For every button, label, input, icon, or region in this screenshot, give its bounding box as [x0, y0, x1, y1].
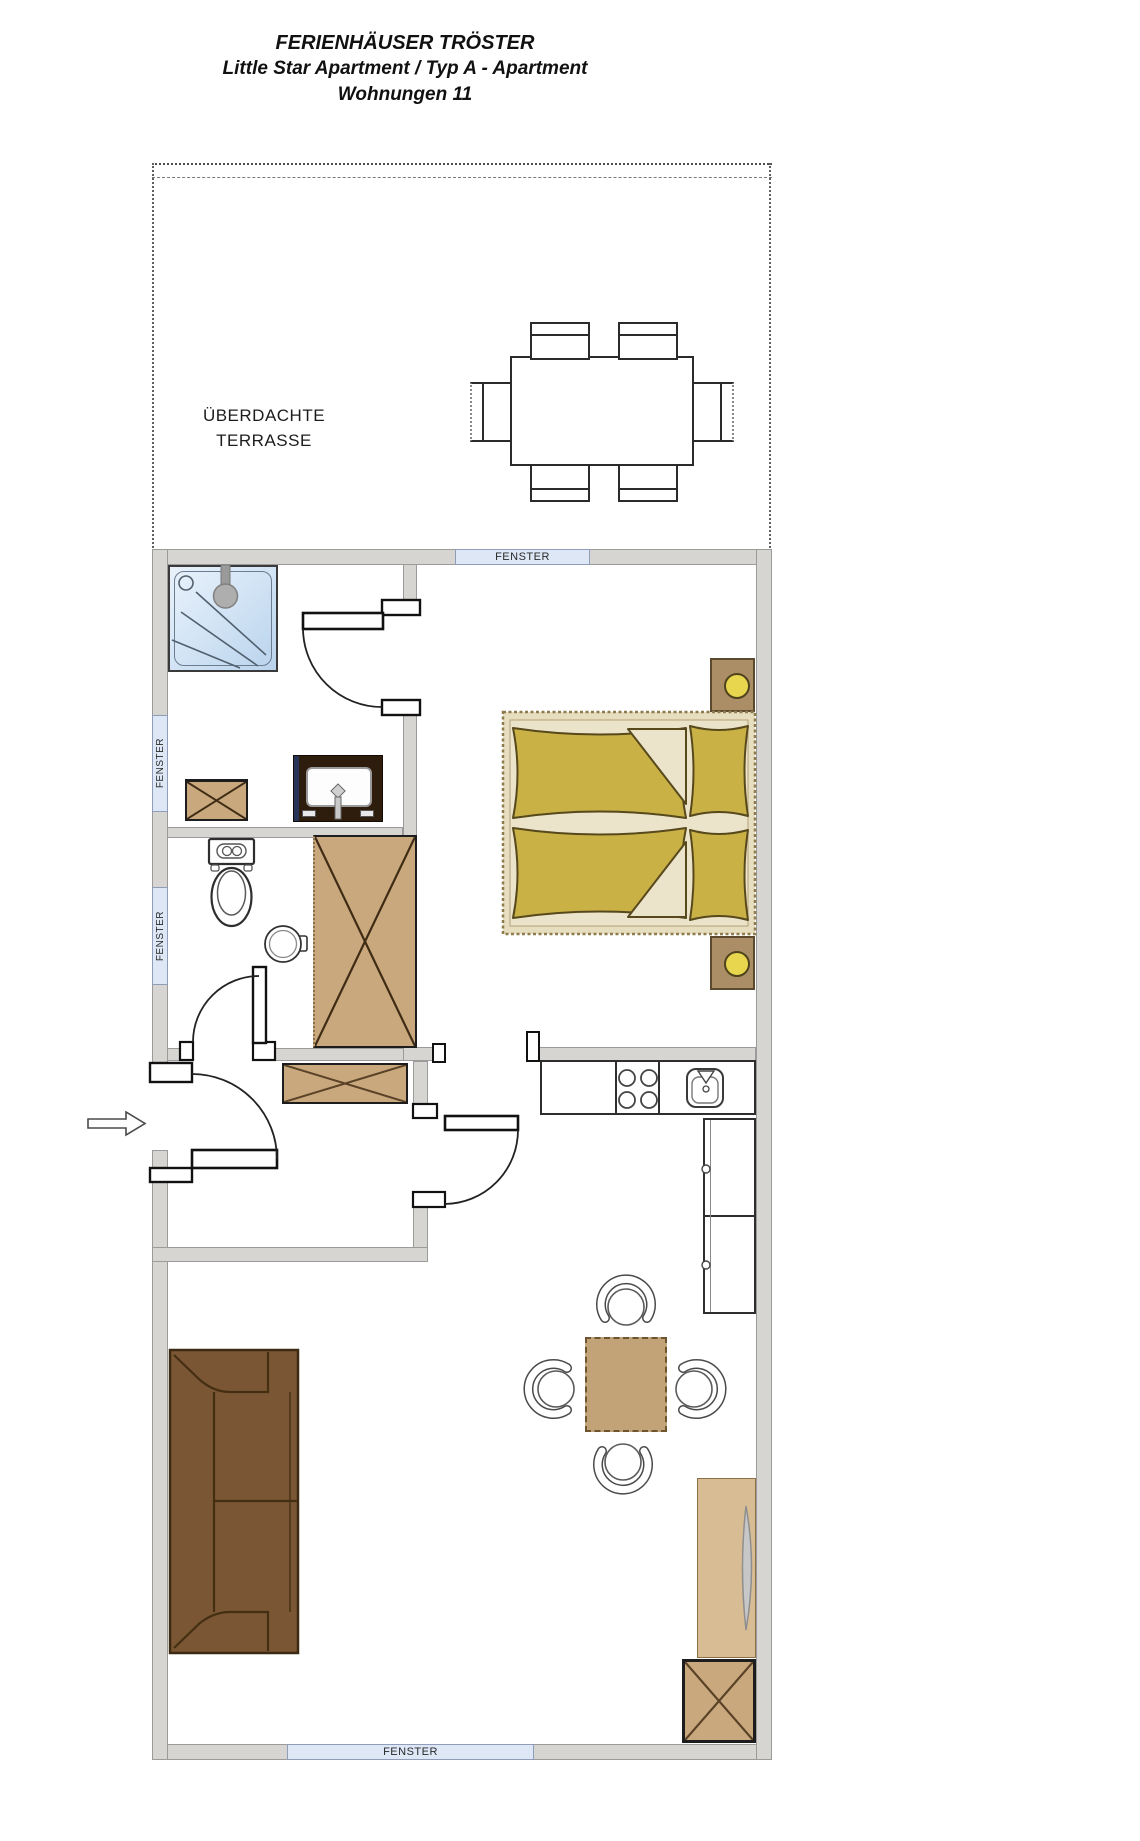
doorway-jamb [527, 1032, 539, 1061]
door-hall [413, 1104, 518, 1207]
door-bathroom [303, 600, 420, 715]
faucet-icon [331, 784, 345, 819]
floor-plan-page: FERIENHÄUSER TRÖSTER Little Star Apartme… [0, 0, 1140, 1841]
sofa [170, 1350, 298, 1653]
pillow [690, 726, 748, 816]
door-wc [180, 967, 275, 1060]
dining-chair [676, 1364, 722, 1414]
cabinet-knob [702, 1261, 710, 1269]
doorway-jamb [433, 1044, 445, 1062]
dining-chair [528, 1364, 574, 1414]
double-bed [503, 712, 755, 934]
dining-chair [598, 1444, 648, 1490]
hand-basin [265, 926, 307, 962]
toilet [209, 839, 254, 926]
stove-burners-icon [619, 1070, 657, 1108]
dining-chair [601, 1279, 651, 1325]
plan-detail-layer [0, 0, 1140, 1841]
shower-head-icon [172, 565, 266, 668]
tv-icon [743, 1506, 752, 1630]
kitchen-sink-icon [687, 1069, 723, 1107]
pillow [690, 830, 748, 920]
entry-arrow-icon [88, 1112, 145, 1135]
door-entry [150, 1063, 277, 1182]
cabinet-knob [702, 1165, 710, 1173]
